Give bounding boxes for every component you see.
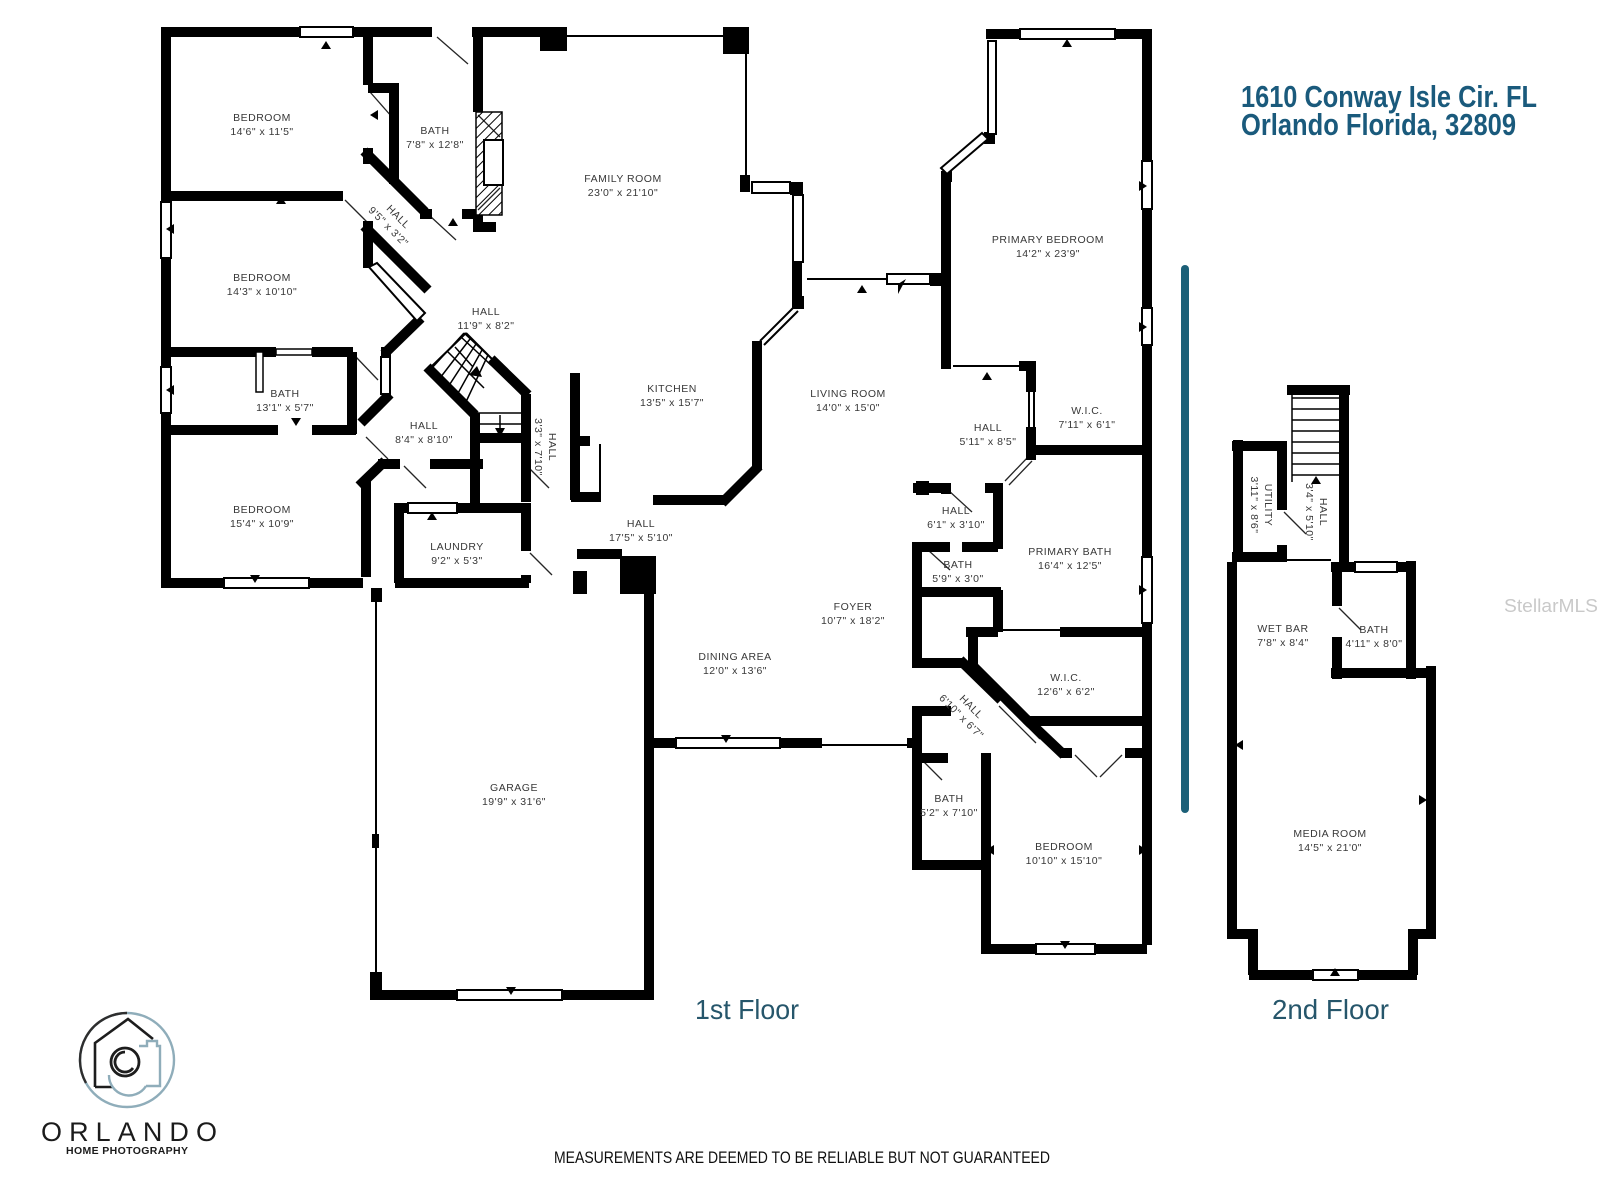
svg-text:MEDIA ROOM: MEDIA ROOM bbox=[1293, 828, 1366, 840]
svg-text:2nd Floor: 2nd Floor bbox=[1272, 994, 1389, 1025]
svg-text:HALL: HALL bbox=[974, 422, 1002, 434]
svg-text:6'1" x 3'10": 6'1" x 3'10" bbox=[927, 519, 985, 531]
svg-text:LAUNDRY: LAUNDRY bbox=[430, 541, 484, 553]
svg-text:BEDROOM: BEDROOM bbox=[233, 272, 291, 284]
svg-text:BEDROOM: BEDROOM bbox=[233, 504, 291, 516]
svg-text:13'5" x 15'7": 13'5" x 15'7" bbox=[640, 397, 704, 409]
svg-text:PRIMARY BATH: PRIMARY BATH bbox=[1028, 546, 1112, 558]
svg-text:HALL: HALL bbox=[472, 306, 500, 318]
svg-text:WET BAR: WET BAR bbox=[1257, 623, 1308, 635]
svg-text:3'4" x 5'10": 3'4" x 5'10" bbox=[1303, 483, 1315, 541]
svg-text:7'8" x 8'4": 7'8" x 8'4" bbox=[1257, 637, 1308, 649]
svg-text:FOYER: FOYER bbox=[834, 601, 873, 613]
svg-text:HALL: HALL bbox=[942, 505, 970, 517]
svg-text:17'5" x 5'10": 17'5" x 5'10" bbox=[609, 532, 673, 544]
svg-text:BEDROOM: BEDROOM bbox=[233, 112, 291, 124]
svg-text:10'7" x 18'2": 10'7" x 18'2" bbox=[821, 615, 885, 627]
svg-text:11'9" x 8'2": 11'9" x 8'2" bbox=[458, 320, 515, 332]
svg-text:KITCHEN: KITCHEN bbox=[647, 383, 697, 395]
svg-text:19'9" x 31'6": 19'9" x 31'6" bbox=[482, 796, 546, 808]
svg-text:BATH: BATH bbox=[934, 793, 963, 805]
svg-text:5'9" x 3'0": 5'9" x 3'0" bbox=[932, 573, 983, 585]
svg-text:MEASUREMENTS ARE DEEMED TO BE: MEASUREMENTS ARE DEEMED TO BE RELIABLE B… bbox=[554, 1148, 1050, 1167]
svg-text:4'11" x 8'0": 4'11" x 8'0" bbox=[1346, 638, 1403, 650]
svg-text:10'10" x 15'10": 10'10" x 15'10" bbox=[1026, 855, 1103, 867]
svg-text:14'3" x 10'10": 14'3" x 10'10" bbox=[227, 286, 297, 298]
svg-text:HOME PHOTOGRAPHY: HOME PHOTOGRAPHY bbox=[66, 1145, 188, 1157]
svg-text:9'2" x 5'3": 9'2" x 5'3" bbox=[431, 555, 482, 567]
svg-text:W.I.C.: W.I.C. bbox=[1071, 405, 1103, 417]
svg-text:5'11" x 8'5": 5'11" x 8'5" bbox=[960, 436, 1017, 448]
svg-text:23'0" x 21'10": 23'0" x 21'10" bbox=[588, 187, 658, 199]
svg-text:16'4" x 12'5": 16'4" x 12'5" bbox=[1038, 560, 1102, 572]
svg-text:1st Floor: 1st Floor bbox=[695, 994, 799, 1025]
svg-text:12'6" x 6'2": 12'6" x 6'2" bbox=[1037, 686, 1095, 698]
svg-text:HALL: HALL bbox=[1317, 498, 1329, 526]
svg-text:BATH: BATH bbox=[1359, 624, 1388, 636]
svg-text:14'5" x 21'0": 14'5" x 21'0" bbox=[1298, 842, 1362, 854]
svg-text:GARAGE: GARAGE bbox=[490, 782, 538, 794]
svg-text:14'6" x 11'5": 14'6" x 11'5" bbox=[230, 126, 293, 138]
svg-text:HALL: HALL bbox=[546, 433, 558, 461]
svg-text:DINING AREA: DINING AREA bbox=[698, 651, 771, 663]
svg-text:12'0" x 13'6": 12'0" x 13'6" bbox=[703, 665, 767, 677]
svg-text:7'8" x 12'8": 7'8" x 12'8" bbox=[406, 139, 464, 151]
svg-text:13'1" x 5'7": 13'1" x 5'7" bbox=[256, 402, 314, 414]
svg-text:5'2" x 7'10": 5'2" x 7'10" bbox=[920, 807, 978, 819]
svg-text:HALL: HALL bbox=[410, 420, 438, 432]
svg-text:Orlando Florida, 32809: Orlando Florida, 32809 bbox=[1241, 107, 1516, 142]
svg-text:8'4" x 8'10": 8'4" x 8'10" bbox=[395, 434, 453, 446]
svg-text:14'0" x 15'0": 14'0" x 15'0" bbox=[816, 402, 880, 414]
svg-text:15'4" x 10'9": 15'4" x 10'9" bbox=[230, 518, 294, 530]
svg-text:W.I.C.: W.I.C. bbox=[1050, 672, 1082, 684]
svg-text:UTILITY: UTILITY bbox=[1262, 484, 1274, 527]
svg-text:BATH: BATH bbox=[270, 388, 299, 400]
svg-text:FAMILY ROOM: FAMILY ROOM bbox=[584, 173, 661, 185]
svg-text:LIVING ROOM: LIVING ROOM bbox=[810, 388, 886, 400]
svg-text:14'2" x 23'9": 14'2" x 23'9" bbox=[1016, 248, 1080, 260]
svg-text:BEDROOM: BEDROOM bbox=[1035, 841, 1093, 853]
svg-text:3'3" x 7'10": 3'3" x 7'10" bbox=[532, 418, 544, 476]
svg-text:HALL: HALL bbox=[627, 518, 655, 530]
svg-text:StellarMLS: StellarMLS bbox=[1504, 596, 1598, 616]
svg-text:BATH: BATH bbox=[943, 559, 972, 571]
svg-text:3'11" x 8'6": 3'11" x 8'6" bbox=[1248, 477, 1260, 534]
svg-text:7'11" x 6'1": 7'11" x 6'1" bbox=[1059, 419, 1116, 431]
svg-text:BATH: BATH bbox=[420, 125, 449, 137]
svg-text:PRIMARY BEDROOM: PRIMARY BEDROOM bbox=[992, 234, 1104, 246]
